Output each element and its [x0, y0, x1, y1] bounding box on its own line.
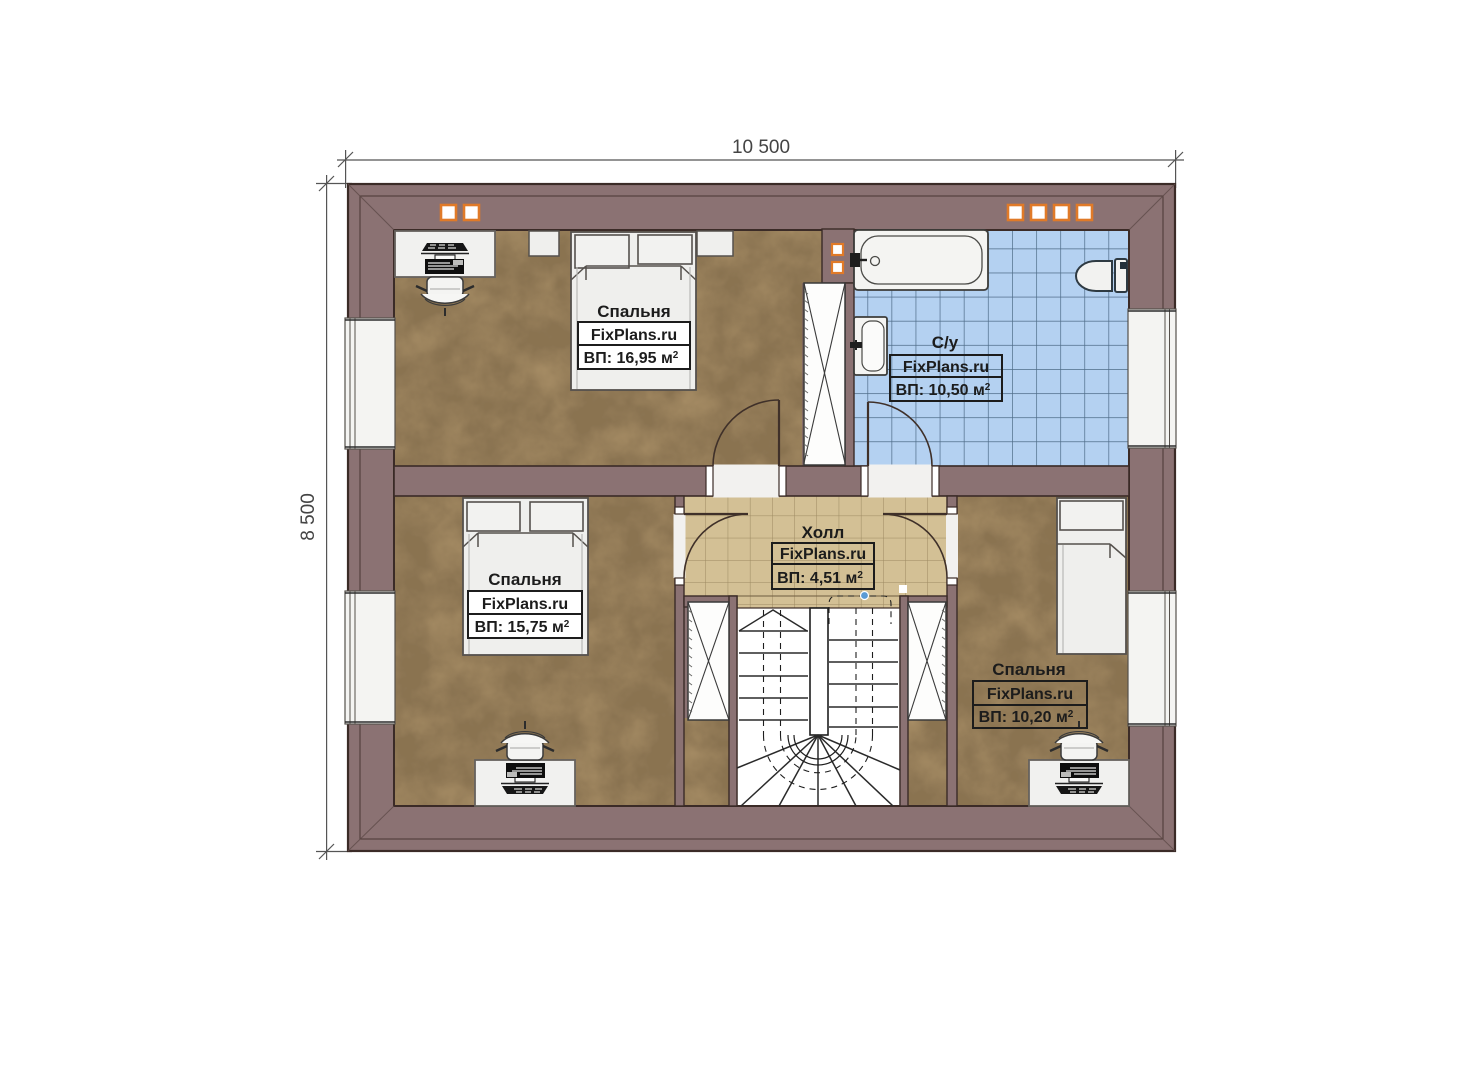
svg-text:Спальня: Спальня — [488, 570, 561, 589]
svg-text:ВП: 16,95 м2: ВП: 16,95 м2 — [584, 350, 679, 367]
svg-text:FixPlans.ru: FixPlans.ru — [482, 596, 568, 613]
svg-text:ВП: 10,20 м2: ВП: 10,20 м2 — [979, 709, 1074, 726]
svg-text:FixPlans.ru: FixPlans.ru — [780, 546, 866, 563]
svg-text:Спальня: Спальня — [992, 660, 1065, 679]
svg-text:FixPlans.ru: FixPlans.ru — [903, 359, 989, 376]
svg-text:Холл: Холл — [802, 523, 845, 542]
svg-text:Спальня: Спальня — [597, 302, 670, 321]
svg-text:8 500: 8 500 — [298, 493, 319, 541]
svg-text:10 500: 10 500 — [732, 137, 790, 158]
svg-text:ВП: 4,51 м2: ВП: 4,51 м2 — [777, 570, 863, 587]
svg-text:FixPlans.ru: FixPlans.ru — [591, 327, 677, 344]
svg-text:FixPlans.ru: FixPlans.ru — [987, 686, 1073, 703]
svg-text:ВП: 10,50 м2: ВП: 10,50 м2 — [896, 382, 991, 399]
svg-text:ВП: 15,75 м2: ВП: 15,75 м2 — [475, 619, 570, 636]
svg-text:С/у: С/у — [932, 333, 959, 352]
